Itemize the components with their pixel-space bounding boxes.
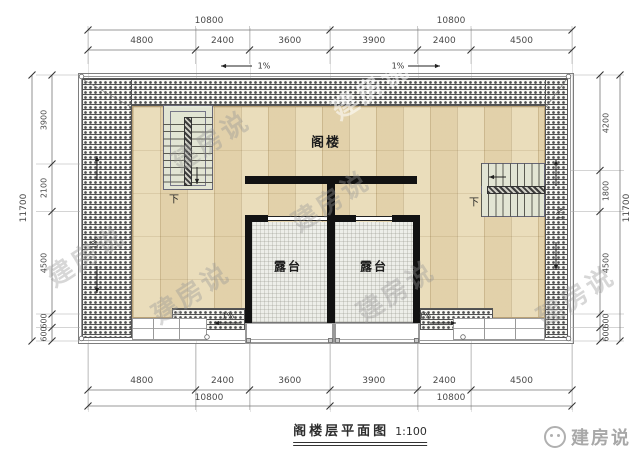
drawing-title: 阁楼层平面图 <box>293 424 389 439</box>
dimension-label: 4500 <box>510 376 533 386</box>
drawing-scale: 1:100 <box>395 425 427 438</box>
dimension-label: 3900 <box>362 376 385 386</box>
dimension-label: 2400 <box>211 36 234 46</box>
title-underline <box>293 442 427 446</box>
dimension-label-layer: 1080010800480048002400240036003600390039… <box>0 0 640 470</box>
dimension-label: 11700 <box>622 194 632 223</box>
dimension-label: 4200 <box>602 113 611 133</box>
brand-logo: 建房说 <box>544 424 631 450</box>
dimension-label: 2400 <box>433 376 456 386</box>
dimension-label: 3600 <box>278 376 301 386</box>
brand-logo-text: 建房说 <box>571 424 631 450</box>
dimension-label: 1800 <box>602 181 611 201</box>
dimension-label: 10800 <box>437 16 466 26</box>
dimension-label: 4800 <box>130 36 153 46</box>
dimension-label: 600 <box>40 327 49 342</box>
dimension-label: 4800 <box>130 376 153 386</box>
dimension-label: 10800 <box>437 393 466 403</box>
dimension-label: 3900 <box>40 109 49 129</box>
dimension-label: 600 <box>602 327 611 342</box>
dimension-label: 11700 <box>19 194 29 223</box>
dimension-label: 2100 <box>40 178 49 198</box>
dimension-label: 4500 <box>602 253 611 273</box>
brand-logo-icon <box>544 426 566 448</box>
dimension-label: 3900 <box>362 36 385 46</box>
dimension-label: 10800 <box>195 393 224 403</box>
dimension-label: 2400 <box>211 376 234 386</box>
dimension-label: 4500 <box>40 253 49 273</box>
dimension-label: 10800 <box>195 16 224 26</box>
floor-plan-canvas: 建房说建房说建房说建房说建房说建房说建房说 阁楼 露台 露台 下 下 1%1%1… <box>0 0 640 470</box>
dimension-label: 2400 <box>433 36 456 46</box>
dimension-label: 4500 <box>510 36 533 46</box>
drawing-title-block: 阁楼层平面图1:100 <box>293 420 427 446</box>
dimension-label: 3600 <box>278 36 301 46</box>
